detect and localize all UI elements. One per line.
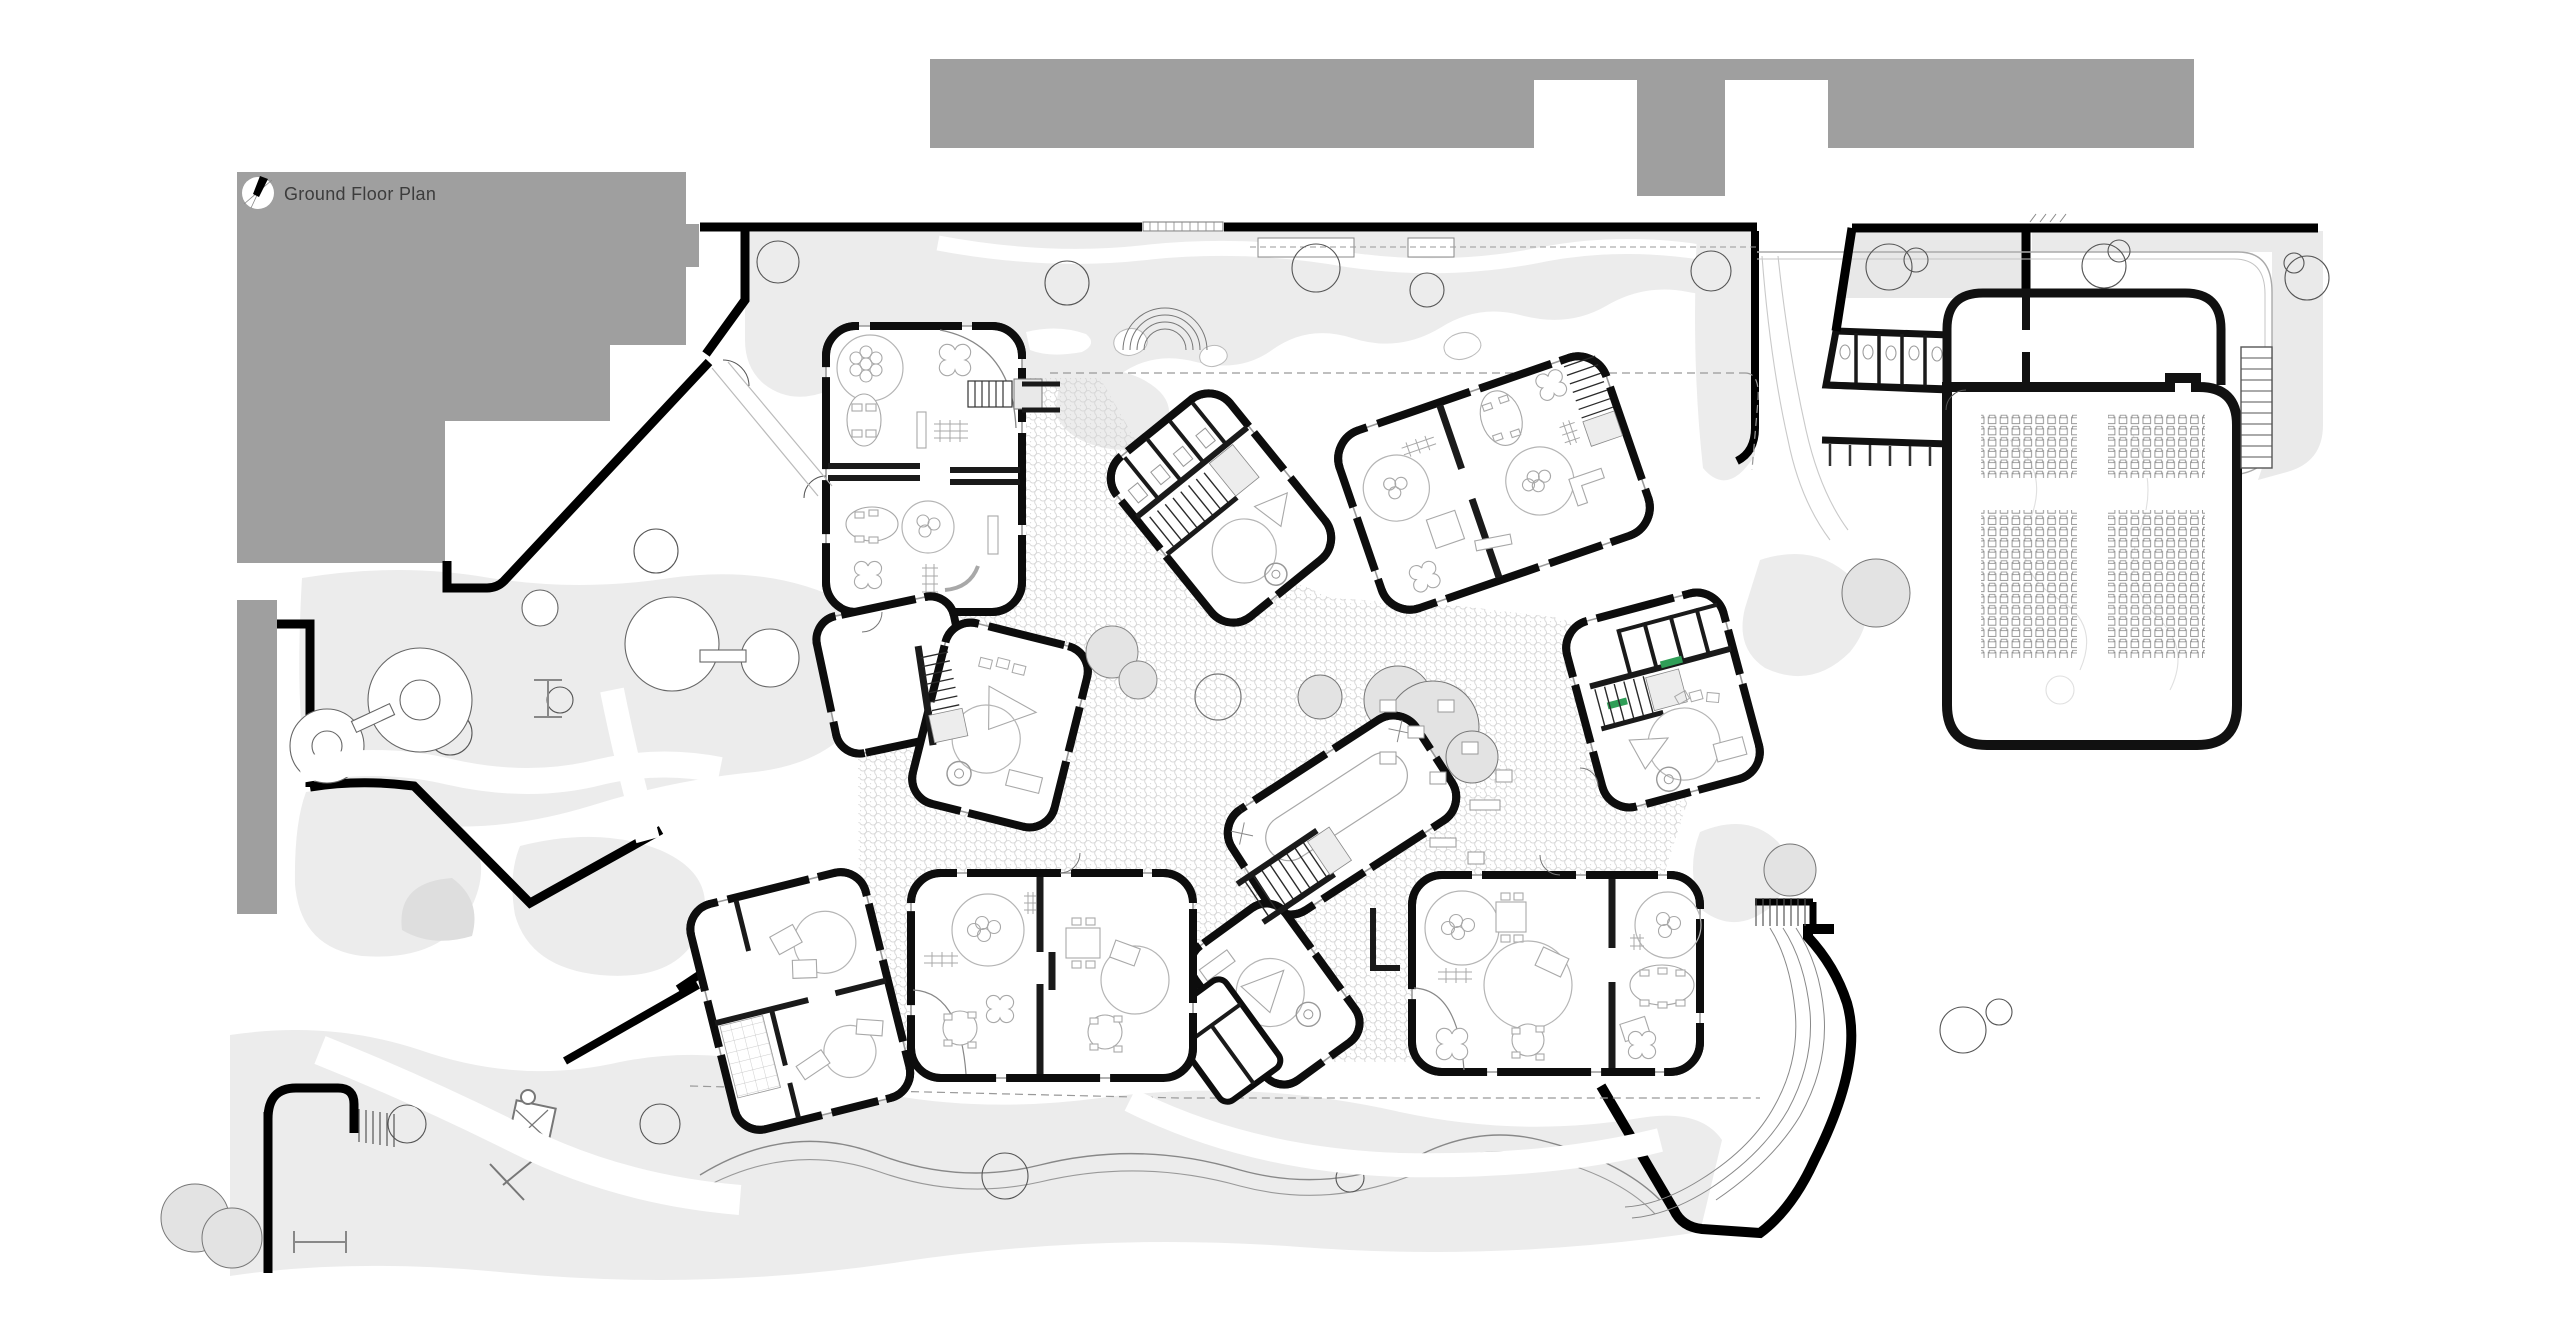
svg-text:Ground Floor Plan: Ground Floor Plan [284,184,436,204]
